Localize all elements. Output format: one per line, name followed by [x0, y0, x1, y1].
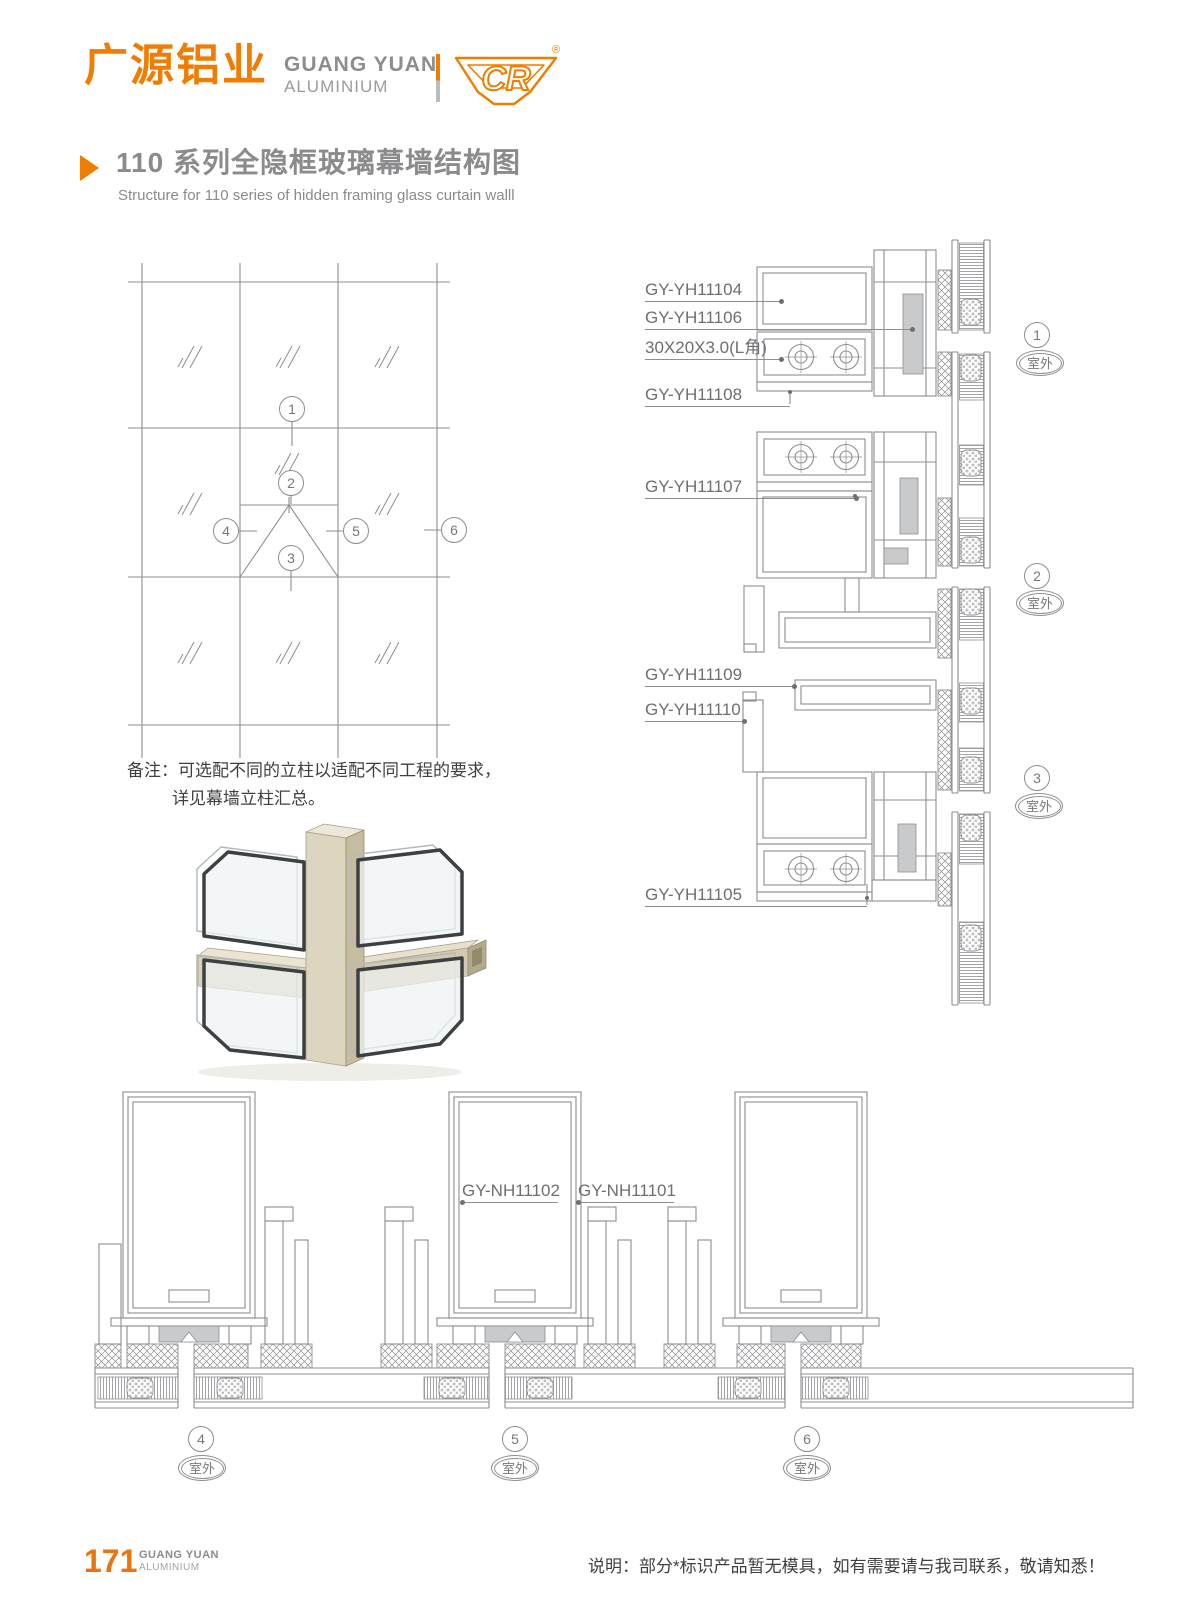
outdoor-badge-6: 室外 [783, 1455, 831, 1481]
part-label-gy-yh11105: GY-YH11105 [645, 886, 867, 907]
page-subtitle: Structure for 110 series of hidden frami… [118, 188, 515, 205]
part-label-text: GY-YH11108 [645, 385, 742, 404]
section-mark-1: 1 [1024, 322, 1050, 348]
page-title: 110 系列全隐框玻璃幕墙结构图 [116, 148, 521, 179]
section-mark-5: 5 [502, 1426, 528, 1452]
part-label-text: GY-YH11105 [645, 885, 742, 904]
page-number: 171 [84, 1545, 137, 1577]
section-mark-6: 6 [794, 1426, 820, 1452]
part-label-gy-yh11104: GY-YH11104 [645, 281, 782, 302]
elevation-callout-5: 5 [343, 518, 369, 544]
section-mark-2: 2 [1024, 563, 1050, 589]
logo-divider [436, 54, 440, 102]
remark-line1: 备注：可选配不同的立柱以适配不同工程的要求， [127, 756, 501, 781]
section-mark-3: 3 [1024, 765, 1050, 791]
section-mark-4: 4 [188, 1426, 214, 1452]
part-label-text: GY-YH11106 [645, 308, 742, 327]
part-label-text: GY-NH11102 [462, 1181, 560, 1200]
outdoor-badge-1: 室外 [1016, 350, 1064, 376]
footer-brand-line2: ALUMINIUM [139, 1563, 200, 1573]
footer-brand-line1: GUANG YUAN [139, 1550, 219, 1561]
outdoor-badge-2: 室外 [1016, 590, 1064, 616]
outdoor-badge-4: 室外 [178, 1455, 226, 1481]
part-label-text: GY-YH11104 [645, 280, 742, 299]
horizontal-sections-drawing [95, 1092, 1133, 1408]
part-label-gy-yh11109: GY-YH11109 [645, 666, 795, 687]
catalog-page: 广源铝业 GUANG YUAN ALUMINIUM CR ® 110 系列全隐框… [0, 0, 1200, 1617]
part-label-text: GY-YH11110 [645, 700, 741, 719]
part-label-l-angle: 30X20X3.0(L角) [645, 339, 782, 360]
part-label-gy-yh11108: GY-YH11108 [645, 386, 790, 407]
registered-trademark-icon: ® [552, 44, 560, 56]
leader-dot [576, 1200, 581, 1205]
part-label-text: GY-YH11107 [645, 477, 742, 496]
leader-dot [779, 299, 784, 304]
logo-chinese: 广源铝业 [84, 44, 268, 88]
part-label-text: GY-YH11109 [645, 665, 742, 684]
leader-dot [742, 719, 747, 724]
logo-english-line1: GUANG YUAN [284, 54, 437, 75]
leader-dot [460, 1200, 465, 1205]
elevation-callout-2: 2 [278, 470, 304, 496]
part-label-gy-yh11107: GY-YH11107 [645, 478, 857, 499]
elevation-callout-1: 1 [279, 396, 305, 422]
elevation-callout-6: 6 [441, 517, 467, 543]
leader-dot [779, 357, 784, 362]
leader-dot [910, 327, 915, 332]
elevation-callout-3: 3 [278, 545, 304, 571]
part-label-gy-nh11102: GY-NH11102 [462, 1182, 558, 1203]
part-label-gy-nh11101: GY-NH11101 [578, 1182, 674, 1203]
elevation-callout-4: 4 [213, 518, 239, 544]
remark-line2: 详见幕墙立柱汇总。 [172, 784, 325, 809]
part-label-text: GY-NH11101 [578, 1181, 676, 1200]
outdoor-badge-3: 室外 [1015, 793, 1063, 819]
brand-emblem-icon: CR ® [452, 42, 562, 112]
elevation-drawing [128, 263, 450, 758]
part-label-gy-yh11110: GY-YH11110 [645, 701, 745, 722]
footer-note: 说明：部分*标识产品暂无模具，如有需要请与我司联系，敬请知悉！ [588, 1552, 1105, 1577]
outdoor-badge-5: 室外 [491, 1455, 539, 1481]
brand-emblem-letters: CR [481, 60, 531, 98]
part-label-text: 30X20X3.0(L角) [645, 338, 767, 357]
part-label-gy-yh11106: GY-YH11106 [645, 309, 913, 330]
title-bullet-icon [80, 155, 99, 181]
render-3d [197, 824, 486, 1081]
leader-dot [854, 496, 859, 501]
leader-dot [792, 684, 797, 689]
logo-english-line2: ALUMINIUM [284, 78, 388, 95]
